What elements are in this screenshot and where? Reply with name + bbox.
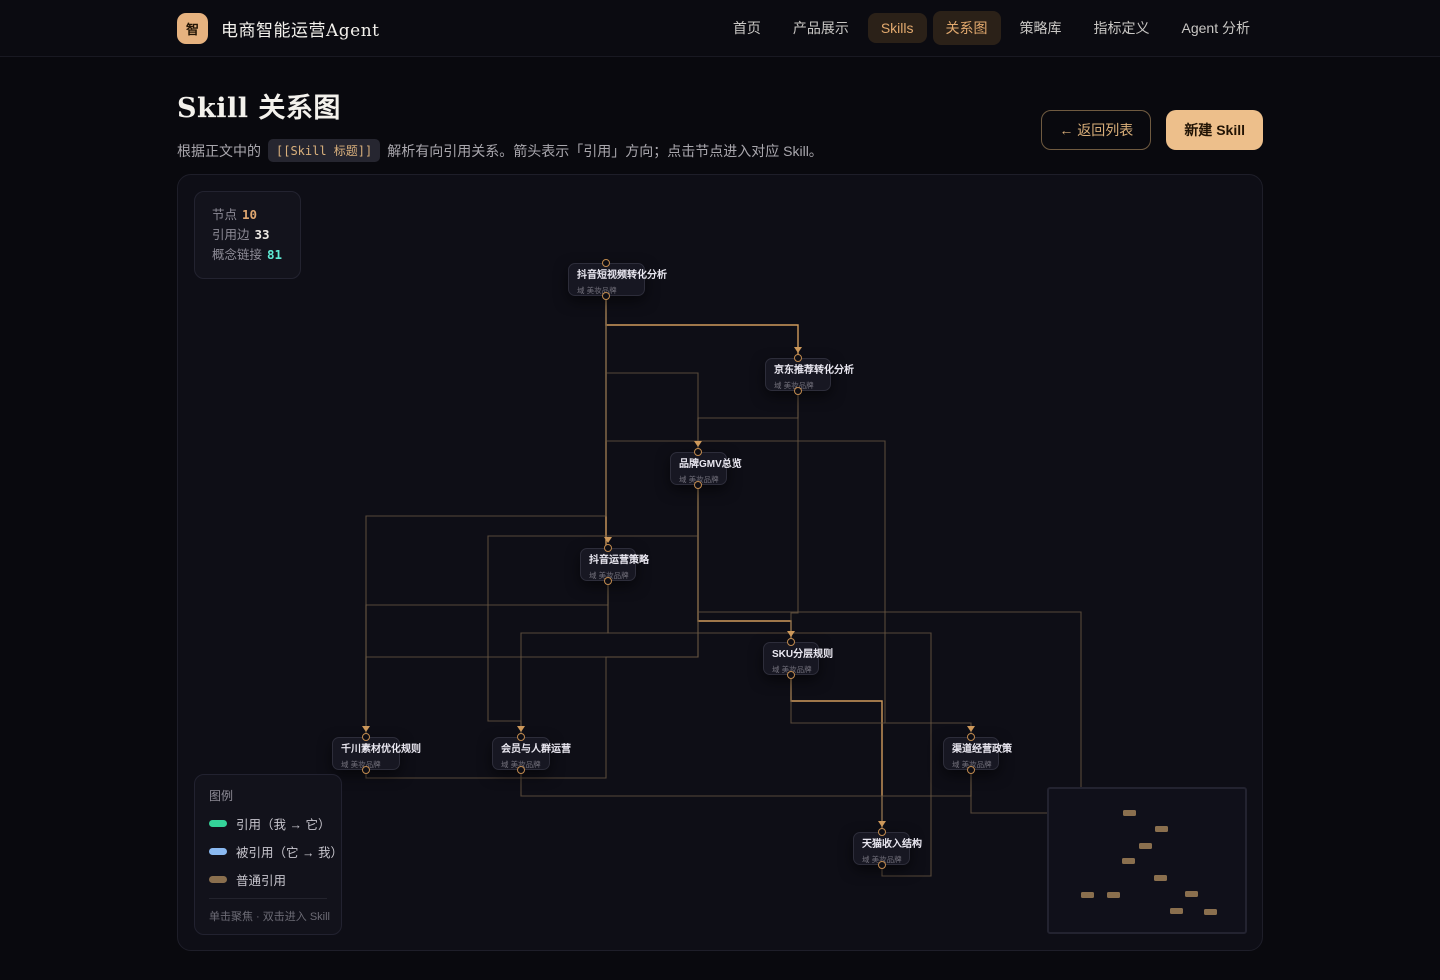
- stat-节点: 节点10: [212, 205, 282, 225]
- edge-line: [882, 770, 971, 831]
- node-port-bottom[interactable]: [787, 671, 795, 679]
- minimap-node-dot: [1170, 908, 1183, 914]
- edge-line: [791, 392, 798, 641]
- nav-item-agent-分析[interactable]: Agent 分析: [1169, 11, 1263, 45]
- edge-line: [606, 296, 698, 451]
- stat-概念链接: 概念链接81: [212, 245, 282, 265]
- graph-node[interactable]: 渠道经营政策域 美妆品牌: [943, 737, 999, 770]
- page-header: Skill 关系图 根据正文中的 [[Skill 标题]] 解析有向引用关系。箭…: [177, 86, 1263, 162]
- header-actions: ← 返回列表 新建 Skill: [1041, 110, 1263, 150]
- nav-item-策略库[interactable]: 策略库: [1007, 11, 1075, 45]
- nav-item-指标定义[interactable]: 指标定义: [1081, 11, 1163, 45]
- legend-swatch-icon: [209, 820, 227, 827]
- node-port-top[interactable]: [517, 733, 525, 741]
- minimap-node-dot: [1204, 909, 1217, 915]
- arrowhead-icon: [517, 726, 525, 732]
- node-title: 天猫收入结构: [862, 839, 901, 851]
- edge-line: [488, 486, 698, 736]
- node-title: 抖音运营策略: [589, 555, 627, 567]
- node-port-bottom[interactable]: [602, 292, 610, 300]
- node-port-top[interactable]: [694, 448, 702, 456]
- node-port-bottom[interactable]: [878, 861, 886, 869]
- nav-item-关系图[interactable]: 关系图: [933, 11, 1001, 45]
- legend-swatch-icon: [209, 876, 227, 883]
- minimap[interactable]: [1047, 787, 1247, 934]
- node-title: 会员与人群运营: [501, 744, 541, 756]
- graph-node[interactable]: 京东推荐转化分析域 美妆品牌: [765, 358, 831, 391]
- minimap-node-dot: [1139, 843, 1152, 849]
- node-title: 渠道经营政策: [952, 744, 990, 756]
- edge-line: [366, 486, 698, 736]
- new-skill-button[interactable]: 新建 Skill: [1166, 110, 1263, 150]
- arrowhead-icon: [694, 441, 702, 447]
- minimap-node-dot: [1081, 892, 1094, 898]
- node-port-top[interactable]: [878, 828, 886, 836]
- edge-line: [521, 771, 882, 831]
- node-title: 抖音短视频转化分析: [577, 270, 636, 282]
- stat-引用边: 引用边33: [212, 225, 282, 245]
- edge-line: [791, 676, 885, 723]
- node-port-top[interactable]: [787, 638, 795, 646]
- arrowhead-icon: [787, 631, 795, 637]
- edge-line: [791, 676, 882, 831]
- graph-canvas[interactable]: 抖音短视频转化分析域 美妆品牌京东推荐转化分析域 美妆品牌品牌GMV总览域 美妆…: [177, 174, 1263, 951]
- legend-swatch-icon: [209, 848, 227, 855]
- node-port-top[interactable]: [602, 259, 610, 267]
- nav-item-产品展示[interactable]: 产品展示: [780, 11, 862, 45]
- edge-line: [606, 296, 798, 357]
- legend-item: 被引用（它 → 我）: [209, 842, 327, 861]
- node-port-bottom[interactable]: [362, 766, 370, 774]
- node-port-top[interactable]: [604, 544, 612, 552]
- node-port-top[interactable]: [362, 733, 370, 741]
- graph-node[interactable]: 千川素材优化规则域 美妆品牌: [332, 737, 400, 770]
- brand: 智 电商智能运营Agent: [177, 13, 380, 44]
- edge-line: [366, 296, 606, 736]
- edge-line: [366, 582, 608, 736]
- top-navigation-bar: 智 电商智能运营Agent 首页产品展示Skills关系图策略库指标定义Agen…: [0, 0, 1440, 57]
- minimap-node-dot: [1155, 826, 1168, 832]
- graph-node[interactable]: 品牌GMV总览域 美妆品牌: [670, 452, 727, 485]
- arrowhead-icon: [967, 726, 975, 732]
- legend-box: 图例 引用（我 → 它）被引用（它 → 我）普通引用 单击聚焦 · 双击进入 S…: [194, 774, 342, 935]
- app-logo-icon: 智: [177, 13, 208, 44]
- node-port-top[interactable]: [967, 733, 975, 741]
- node-port-top[interactable]: [794, 354, 802, 362]
- edge-line: [698, 486, 1081, 801]
- back-to-list-button[interactable]: ← 返回列表: [1041, 110, 1151, 150]
- graph-stats-box: 节点10引用边33概念链接81: [194, 191, 301, 279]
- graph-node[interactable]: 天猫收入结构域 美妆品牌: [853, 832, 910, 865]
- node-port-bottom[interactable]: [517, 766, 525, 774]
- edge-line: [698, 392, 798, 451]
- legend-item: 引用（我 → 它）: [209, 814, 327, 833]
- node-port-bottom[interactable]: [794, 387, 802, 395]
- skill-title-badge: [[Skill 标题]]: [268, 139, 380, 162]
- node-title: 京东推荐转化分析: [774, 365, 822, 377]
- minimap-node-dot: [1154, 875, 1167, 881]
- edge-line: [366, 486, 698, 778]
- desc-prefix: 根据正文中的: [177, 141, 261, 161]
- minimap-node-dot: [1123, 810, 1136, 816]
- edge-line: [698, 486, 791, 641]
- main-nav: 首页产品展示Skills关系图策略库指标定义Agent 分析: [720, 11, 1263, 45]
- arrowhead-icon: [878, 821, 886, 827]
- graph-node[interactable]: 会员与人群运营域 美妆品牌: [492, 737, 550, 770]
- legend-title: 图例: [209, 787, 327, 804]
- nav-item-skills[interactable]: Skills: [868, 13, 927, 43]
- minimap-node-dot: [1107, 892, 1120, 898]
- graph-node[interactable]: 抖音短视频转化分析域 美妆品牌: [568, 263, 645, 296]
- legend-item: 普通引用: [209, 870, 327, 889]
- minimap-node-dot: [1122, 858, 1135, 864]
- desc-suffix: 解析有向引用关系。箭头表示「引用」方向；点击节点进入对应 Skill。: [387, 141, 823, 161]
- arrowhead-icon: [362, 726, 370, 732]
- arrowhead-icon: [604, 537, 612, 543]
- node-port-bottom[interactable]: [967, 766, 975, 774]
- node-title: 品牌GMV总览: [679, 459, 718, 471]
- nav-item-首页[interactable]: 首页: [720, 11, 774, 45]
- graph-node[interactable]: SKU分层规则域 美妆品牌: [763, 642, 819, 675]
- minimap-node-dot: [1185, 891, 1198, 897]
- node-port-bottom[interactable]: [604, 577, 612, 585]
- graph-node[interactable]: 抖音运营策略域 美妆品牌: [580, 548, 636, 581]
- node-title: 千川素材优化规则: [341, 744, 391, 756]
- node-port-bottom[interactable]: [694, 481, 702, 489]
- arrowhead-icon: [794, 347, 802, 353]
- legend-hint: 单击聚焦 · 双击进入 Skill: [209, 898, 327, 924]
- node-title: SKU分层规则: [772, 649, 810, 661]
- app-title: 电商智能运营Agent: [221, 16, 380, 41]
